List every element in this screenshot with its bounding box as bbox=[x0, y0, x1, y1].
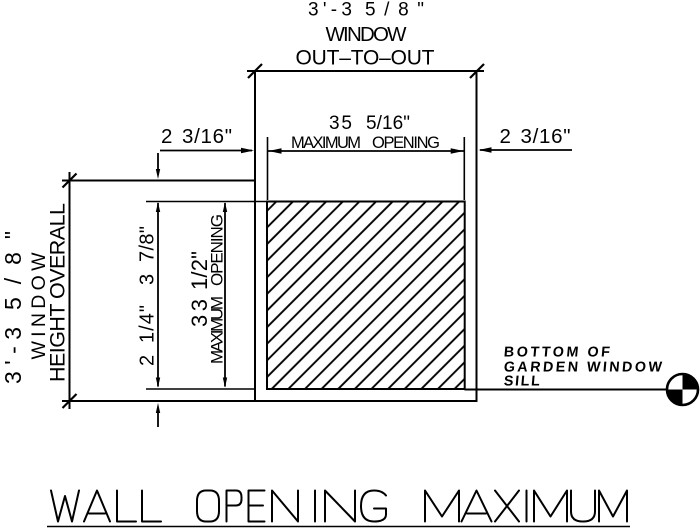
svg-text:OPENING: OPENING bbox=[208, 214, 227, 286]
svg-text:HEIGHT OVERALL: HEIGHT OVERALL bbox=[46, 203, 70, 382]
svg-text:2: 2 bbox=[500, 125, 511, 148]
svg-text:5/8": 5/8" bbox=[365, 0, 424, 21]
svg-text:3/16": 3/16" bbox=[182, 125, 232, 148]
svg-text:2: 2 bbox=[137, 355, 159, 366]
svg-text:BOTTOM OF: BOTTOM OF bbox=[503, 345, 611, 361]
svg-text:3'-3: 3'-3 bbox=[0, 327, 26, 384]
svg-text:OPENING: OPENING bbox=[372, 134, 440, 152]
svg-text:1/4": 1/4" bbox=[137, 305, 159, 343]
svg-text:OUT–TO–OUT: OUT–TO–OUT bbox=[296, 47, 435, 70]
svg-text:3/16": 3/16" bbox=[521, 125, 571, 148]
svg-text:SILL: SILL bbox=[503, 374, 541, 390]
svg-text:7/8": 7/8" bbox=[137, 226, 159, 262]
svg-text:MAXIMUM: MAXIMUM bbox=[208, 296, 227, 364]
svg-text:2: 2 bbox=[161, 125, 172, 148]
svg-text:WINDOW: WINDOW bbox=[326, 23, 408, 46]
svg-text:5/16": 5/16" bbox=[366, 113, 410, 134]
svg-text:35: 35 bbox=[329, 113, 352, 134]
svg-text:3'-3: 3'-3 bbox=[308, 0, 352, 21]
svg-text:5/8": 5/8" bbox=[0, 231, 26, 310]
svg-text:MAXIMUM: MAXIMUM bbox=[291, 134, 361, 152]
svg-text:3: 3 bbox=[137, 274, 159, 285]
